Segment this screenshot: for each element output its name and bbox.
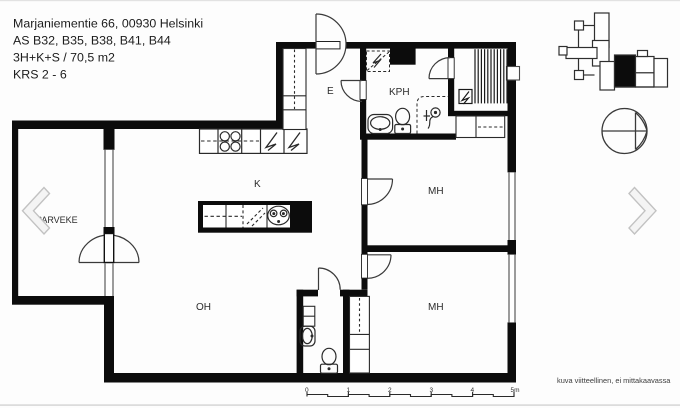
svg-text:E: E [327, 86, 334, 97]
svg-text:KRS 2 - 6: KRS 2 - 6 [13, 68, 67, 82]
svg-text:1: 1 [347, 387, 351, 394]
svg-text:Marjaniementie 66, 00930 Helsi: Marjaniementie 66, 00930 Helsinki [13, 17, 203, 31]
svg-text:4: 4 [471, 387, 475, 394]
svg-text:K: K [254, 179, 261, 190]
svg-text:AS B32, B35, B38, B41, B44: AS B32, B35, B38, B41, B44 [13, 34, 171, 48]
svg-text:MH: MH [428, 186, 444, 197]
svg-text:2: 2 [388, 387, 392, 394]
svg-text:3H+K+S / 70,5 m2: 3H+K+S / 70,5 m2 [13, 51, 115, 65]
svg-text:KPH: KPH [389, 87, 410, 98]
svg-text:MH: MH [428, 302, 444, 313]
svg-text:3: 3 [430, 387, 434, 394]
svg-text:5m: 5m [511, 387, 520, 394]
svg-text:OH: OH [196, 302, 211, 313]
svg-text:kuva viitteellinen, ei mittaka: kuva viitteellinen, ei mittakaavassa [557, 376, 671, 385]
svg-text:0: 0 [305, 387, 309, 394]
